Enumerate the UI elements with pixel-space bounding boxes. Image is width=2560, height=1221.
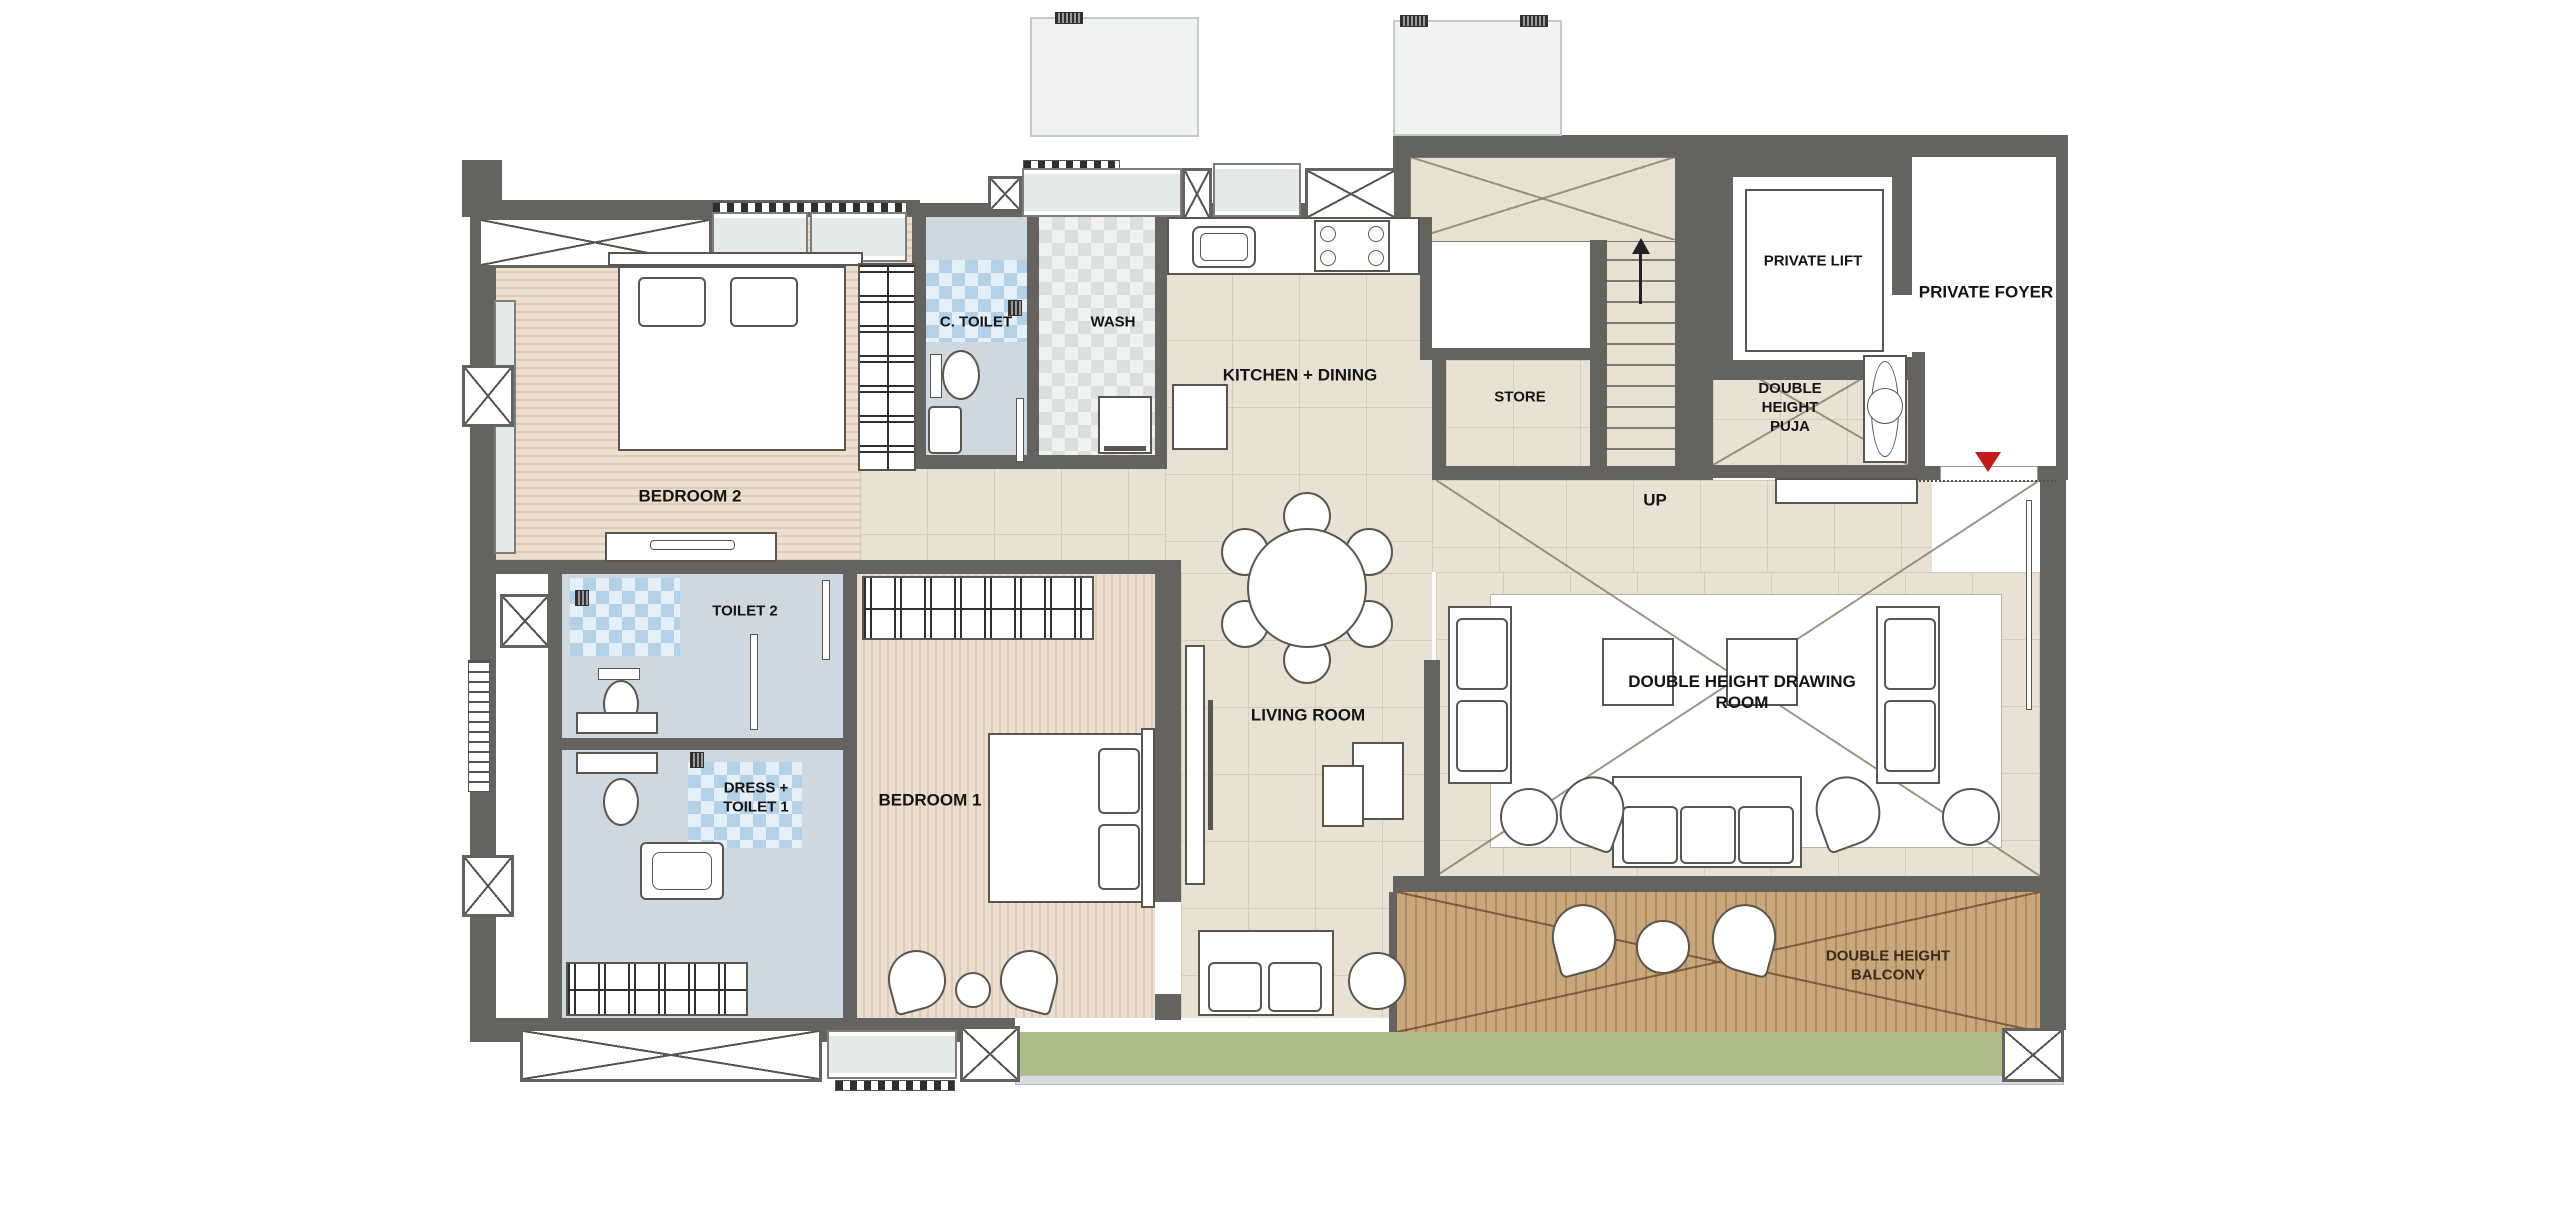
wall-bedroom2-bottom <box>470 560 860 574</box>
window-bedroom1-bottom <box>827 1030 957 1079</box>
wall-toilets-left <box>548 574 562 1020</box>
dress-wc <box>603 778 639 826</box>
label-wash: WASH <box>1091 314 1136 333</box>
label-drawing: DOUBLE HEIGHT DRAWING ROOM <box>1612 671 1872 714</box>
drawing-sofa-right-cushion-1 <box>1884 618 1936 690</box>
bedroom1-pillow-1 <box>1098 748 1140 814</box>
label-living: LIVING ROOM <box>1251 704 1365 725</box>
window-wash <box>1022 168 1182 217</box>
drawing-curtain-line <box>2026 500 2032 710</box>
living-side-table <box>1348 952 1406 1010</box>
label-private-lift: PRIVATE LIFT <box>1763 253 1863 272</box>
living-sofa-cushion-1 <box>1208 962 1262 1012</box>
label-kitchen-dining: KITCHEN + DINING <box>1223 364 1377 385</box>
stove-burner-2 <box>1368 226 1384 242</box>
drawing-sofa-right-cushion-2 <box>1884 700 1936 772</box>
bedroom2-wardrobe <box>858 263 916 471</box>
wall-bedroom1-top <box>845 560 1181 574</box>
stove-burner-1 <box>1320 226 1336 242</box>
wall-toilets-right <box>843 574 857 1020</box>
living-sofa-cushion-2 <box>1268 962 1322 1012</box>
store-floor <box>1446 360 1598 466</box>
dress-counter <box>576 752 658 774</box>
wall-store-top <box>1432 348 1602 360</box>
bedroom1-headboard <box>1141 728 1155 908</box>
stair-landing-winder-lines <box>1410 157 1675 240</box>
wall-kitchen-right <box>1420 217 1432 360</box>
wall-puja-bottom <box>1713 465 1913 478</box>
stair-up-arrow <box>1632 238 1650 254</box>
tv-screen <box>1208 700 1213 830</box>
window-kitchen <box>1213 163 1301 217</box>
puja-console <box>1775 478 1918 504</box>
wall-toilet2-dress <box>562 738 843 750</box>
c-toilet-wc-tank <box>930 354 942 398</box>
wall-foyer-right <box>2056 137 2068 480</box>
dress-basin-bowl <box>652 852 712 890</box>
bedroom2-pillow-2 <box>730 277 798 327</box>
planter-sill <box>1015 1075 2064 1085</box>
drawing-sofa-center-cushion-1 <box>1622 806 1678 864</box>
label-bedroom1: BEDROOM 1 <box>879 789 982 810</box>
beam-top-kitchen <box>1305 168 1397 220</box>
window-left-ladder-1 <box>468 660 490 792</box>
stove-burner-4 <box>1368 250 1384 266</box>
label-bedroom2: BEDROOM 2 <box>639 485 742 506</box>
column-bottom-mid <box>960 1026 1020 1082</box>
dress-wardrobe <box>566 962 748 1016</box>
drawing-side-table-right <box>1942 788 2000 846</box>
label-balcony: DOUBLE HEIGHT BALCONY <box>1793 947 1983 985</box>
balcony-table <box>1636 920 1690 974</box>
wall-ctoilet-wash <box>1027 217 1039 467</box>
living-coffee-table-2 <box>1322 765 1364 827</box>
entry-direction-triangle <box>1975 452 2001 472</box>
stove-burner-3 <box>1320 250 1336 266</box>
label-dress-toilet1: DRESS + TOILET 1 <box>701 779 811 817</box>
dress-shower-head <box>690 752 704 768</box>
dining-table <box>1247 528 1367 648</box>
toilet2-counter <box>576 712 658 734</box>
wall-understair <box>1432 466 1713 480</box>
label-toilet2: TOILET 2 <box>712 603 778 622</box>
bedroom2-bench-tray <box>650 540 735 550</box>
ledge-bottom-left <box>520 1028 822 1082</box>
planter-strip <box>1015 1032 2062 1075</box>
wall-stair-right <box>1675 157 1713 480</box>
column-top-2 <box>1182 168 1212 220</box>
refrigerator <box>1172 384 1228 450</box>
wall-living-drawing <box>1424 660 1440 878</box>
entry-threshold-line <box>1916 480 2056 482</box>
tv-console <box>1185 645 1205 885</box>
toilet2-shower-head <box>575 590 589 606</box>
bedroom2-headboard <box>608 252 863 266</box>
duct-vent-1 <box>1055 12 1083 24</box>
c-toilet-sliding-door <box>1016 398 1024 462</box>
wall-toilets-bottom <box>912 455 1167 469</box>
wall-drawing-right <box>2040 470 2066 1030</box>
louver-strip-bottom <box>835 1080 955 1091</box>
column-top-1 <box>988 176 1022 212</box>
toilet2-partition <box>750 634 758 730</box>
label-store: STORE <box>1494 389 1545 408</box>
wall-topblock <box>1393 135 2068 157</box>
column-left-3 <box>462 855 514 917</box>
wall-wash-right <box>1155 217 1167 467</box>
label-c-toilet: C. TOILET <box>940 314 1012 333</box>
wall-store-left <box>1432 348 1446 480</box>
wall-drawing-bottom <box>1393 876 2042 892</box>
wall-stair-store <box>1590 240 1607 480</box>
drawing-sofa-left-cushion-1 <box>1456 618 1508 690</box>
column-left-2 <box>500 594 550 648</box>
label-puja: DOUBLE HEIGHT PUJA <box>1740 380 1840 436</box>
duct-vent-3 <box>1520 15 1548 27</box>
floor-plan: BEDROOM 2 C. TOILET WASH KITCHEN + DININ… <box>0 0 2560 1221</box>
window-left-bay <box>494 300 516 554</box>
lift-door-opening <box>1892 295 1912 357</box>
duct-shaft-2 <box>1393 20 1562 136</box>
bedroom1-wardrobe <box>862 576 1094 640</box>
kitchen-sink-basin <box>1200 233 1248 261</box>
label-private-foyer: PRIVATE FOYER <box>1919 281 2053 302</box>
duct-shaft-1 <box>1030 17 1199 137</box>
wall-puja-right <box>1908 352 1925 480</box>
column-bottom-right <box>2002 1028 2064 1082</box>
duct-vent-2 <box>1400 15 1428 27</box>
bedroom1-pillow-2 <box>1098 824 1140 890</box>
washing-machine-panel <box>1104 446 1146 451</box>
toilet2-door <box>822 580 830 660</box>
c-toilet-sink <box>928 406 962 454</box>
drawing-sofa-center-cushion-3 <box>1738 806 1794 864</box>
drawing-sofa-center-cushion-2 <box>1680 806 1736 864</box>
drawing-sofa-left-cushion-2 <box>1456 700 1508 772</box>
stair-arrow-shaft <box>1639 252 1642 304</box>
bedroom2-pillow-1 <box>638 277 706 327</box>
toilet2-wc-tank <box>598 668 640 680</box>
drawing-side-table-left <box>1500 788 1558 846</box>
column-left-1 <box>462 365 514 427</box>
c-toilet-wc <box>942 350 980 400</box>
bedroom1-door-opening <box>1155 902 1181 994</box>
wall-top-left-notch <box>462 160 502 217</box>
label-up: UP <box>1643 489 1667 510</box>
bedroom1-side-table <box>955 972 991 1008</box>
puja-shrine-circle <box>1867 388 1903 424</box>
